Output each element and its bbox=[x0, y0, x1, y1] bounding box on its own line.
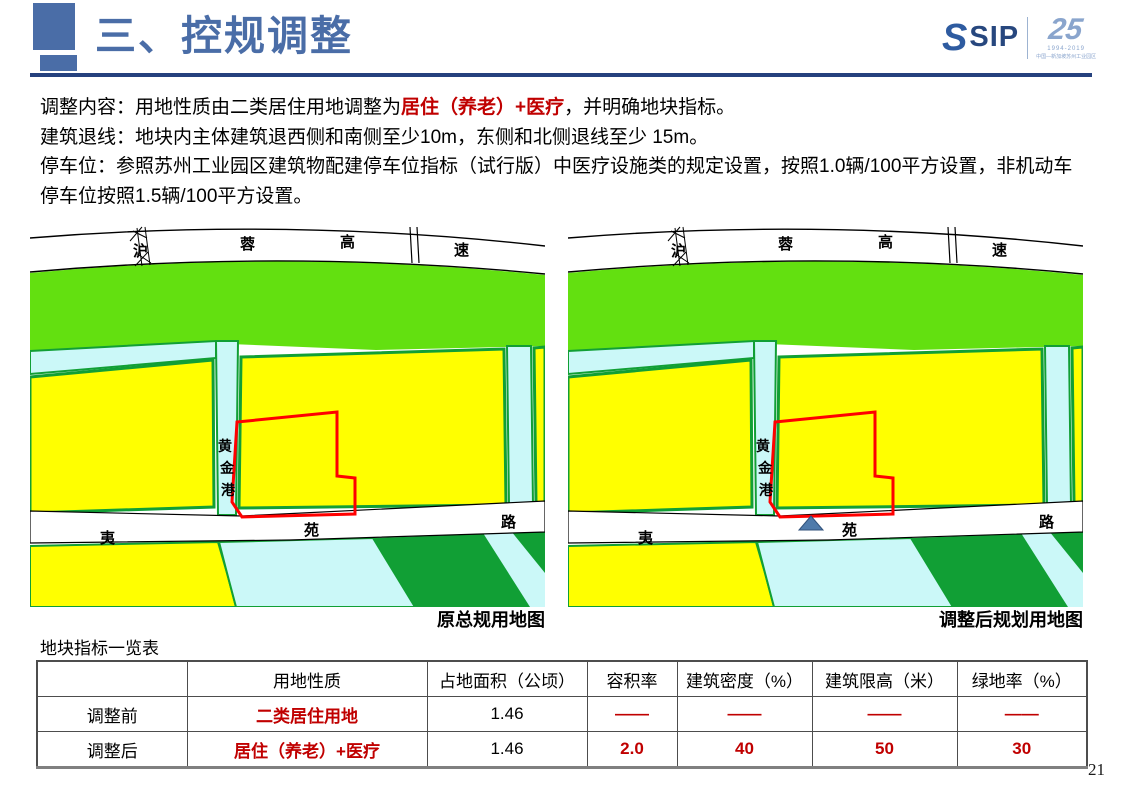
anniversary-years: 1994-2019 bbox=[1047, 45, 1085, 53]
highway-label-char: 沪 bbox=[133, 242, 148, 260]
density-cell: 40 bbox=[677, 732, 812, 768]
body-line-3: 停车位：参照苏州工业园区建筑物配建停车位指标（试行版）中医疗设施类的规定设置，按… bbox=[40, 152, 1090, 211]
table-title: 地块指标一览表 bbox=[40, 634, 159, 659]
highway-label-char: 速 bbox=[454, 241, 469, 259]
canal-label-char: 金 bbox=[757, 460, 773, 476]
road-label-char: 路 bbox=[1039, 513, 1055, 531]
canal-label-char: 金 bbox=[219, 460, 235, 476]
parcel-south bbox=[568, 542, 774, 607]
area-cell: 1.46 bbox=[427, 697, 587, 732]
canal-label-char: 黄 bbox=[218, 438, 232, 454]
land-use-cell: 居住（养老）+医疗 bbox=[187, 732, 427, 768]
height-limit-cell: —— bbox=[812, 697, 957, 732]
far-cell: 2.0 bbox=[587, 732, 677, 768]
table-row-after: 调整后 居住（养老）+医疗 1.46 2.0 40 50 30 bbox=[37, 732, 1087, 768]
road-label-char: 苑 bbox=[304, 521, 319, 539]
header-cell: 占地面积（公顷） bbox=[427, 661, 587, 697]
map-caption-original: 原总规用地图 bbox=[30, 606, 545, 632]
anniversary-mark: 25 1994-2019 中国—新加坡苏州工业园区 bbox=[1036, 15, 1096, 59]
logo-divider bbox=[1027, 17, 1028, 59]
parcel-east bbox=[534, 347, 545, 503]
header-cell: 建筑密度（%） bbox=[677, 661, 812, 697]
map-adjusted-plan: 沪 蓉 高 速 黄 金 港 夷 苑 路 bbox=[568, 225, 1083, 607]
area-cell: 1.46 bbox=[427, 732, 587, 768]
title-underline bbox=[30, 73, 1092, 77]
highway-label-char: 沪 bbox=[671, 242, 686, 260]
land-use-cell: 二类居住用地 bbox=[187, 697, 427, 732]
green-open-space bbox=[568, 261, 1083, 352]
highway-label-char: 高 bbox=[878, 233, 893, 251]
green-rate-cell: 30 bbox=[957, 732, 1087, 768]
parcel-east bbox=[1072, 347, 1083, 503]
sip-wordmark: SIP bbox=[969, 23, 1019, 52]
height-limit-cell: 50 bbox=[812, 732, 957, 768]
header-cell: 绿地率（%） bbox=[957, 661, 1087, 697]
anniversary-25-icon: 25 bbox=[1047, 15, 1085, 45]
highway-label-char: 蓉 bbox=[778, 235, 793, 253]
map-original-plan: 沪 蓉 高 速 黄 金 港 夷 苑 路 bbox=[30, 225, 545, 607]
canal-east bbox=[1045, 346, 1071, 506]
header-cell: 容积率 bbox=[587, 661, 677, 697]
highway-label-char: 速 bbox=[992, 241, 1007, 259]
road-label-char: 夷 bbox=[100, 529, 116, 547]
table-row-before: 调整前 二类居住用地 1.46 —— —— —— —— bbox=[37, 697, 1087, 732]
road-label-char: 苑 bbox=[842, 521, 857, 539]
canal-label-char: 港 bbox=[759, 482, 774, 498]
title-accent-bar bbox=[40, 55, 77, 71]
indicators-table: 用地性质 占地面积（公顷） 容积率 建筑密度（%） 建筑限高（米） 绿地率（%）… bbox=[36, 660, 1088, 769]
page-title: 三、控规调整 bbox=[95, 2, 353, 62]
line1-prefix: 调整内容：用地性质由二类居住用地调整为 bbox=[40, 97, 401, 118]
header-cell: 建筑限高（米） bbox=[812, 661, 957, 697]
body-paragraphs: 调整内容：用地性质由二类居住用地调整为居住（养老）+医疗，并明确地块指标。 建筑… bbox=[40, 93, 1090, 211]
sip-logo: S SIP 25 1994-2019 中国—新加坡苏州工业园区 bbox=[942, 10, 1117, 65]
row-label: 调整前 bbox=[37, 697, 187, 732]
highway-label-char: 高 bbox=[340, 233, 355, 251]
parcel-west bbox=[30, 360, 214, 513]
road-label-char: 路 bbox=[501, 513, 517, 531]
sip-s-icon: S bbox=[942, 19, 967, 57]
parcel-center bbox=[777, 349, 1044, 508]
canal-label-char: 黄 bbox=[756, 438, 770, 454]
green-open-space bbox=[30, 261, 545, 352]
parcel-south bbox=[30, 542, 236, 607]
parcel-center bbox=[239, 349, 506, 508]
line1-suffix: ，并明确地块指标。 bbox=[564, 97, 735, 118]
header-cell bbox=[37, 661, 187, 697]
road-label-char: 夷 bbox=[638, 529, 654, 547]
canal-label-char: 港 bbox=[221, 482, 236, 498]
map-caption-adjusted: 调整后规划用地图 bbox=[568, 606, 1083, 632]
line1-highlight: 居住（养老）+医疗 bbox=[401, 97, 564, 118]
row-label: 调整后 bbox=[37, 732, 187, 768]
parcel-west bbox=[568, 360, 752, 513]
body-line-1: 调整内容：用地性质由二类居住用地调整为居住（养老）+医疗，并明确地块指标。 bbox=[40, 93, 1090, 123]
body-line-2: 建筑退线：地块内主体建筑退西侧和南侧至少10m，东侧和北侧退线至少 15m。 bbox=[40, 123, 1090, 153]
header-cell: 用地性质 bbox=[187, 661, 427, 697]
title-accent-square bbox=[33, 3, 75, 50]
green-rate-cell: —— bbox=[957, 697, 1087, 732]
far-cell: —— bbox=[587, 697, 677, 732]
highway-label-char: 蓉 bbox=[240, 235, 255, 253]
page-number: 21 bbox=[1088, 760, 1105, 780]
anniversary-org: 中国—新加坡苏州工业园区 bbox=[1036, 54, 1096, 60]
density-cell: —— bbox=[677, 697, 812, 732]
canal-east bbox=[507, 346, 533, 506]
table-header-row: 用地性质 占地面积（公顷） 容积率 建筑密度（%） 建筑限高（米） 绿地率（%） bbox=[37, 661, 1087, 697]
slide: 三、控规调整 S SIP 25 1994-2019 中国—新加坡苏州工业园区 调… bbox=[0, 0, 1123, 794]
